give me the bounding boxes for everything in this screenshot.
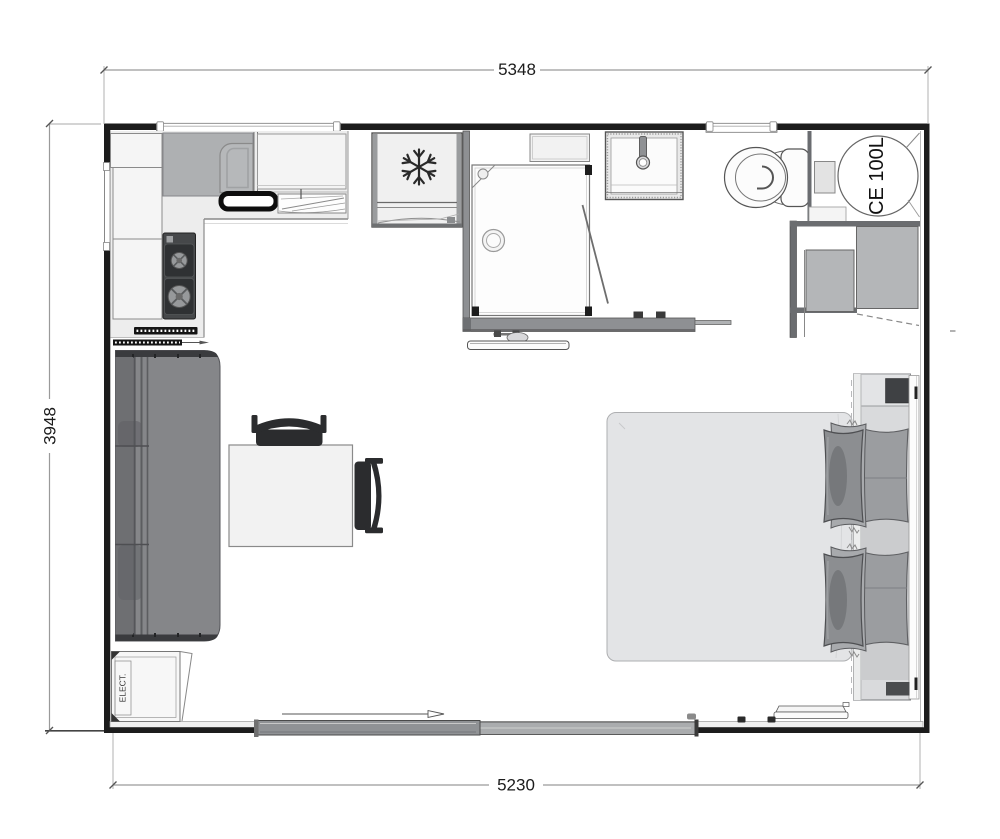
svg-text:5348: 5348	[498, 60, 536, 79]
svg-text:3948: 3948	[41, 407, 60, 445]
svg-text:5230: 5230	[497, 776, 535, 795]
svg-text:ELECT.: ELECT.	[118, 674, 128, 703]
svg-text:CE 100L: CE 100L	[866, 137, 888, 215]
